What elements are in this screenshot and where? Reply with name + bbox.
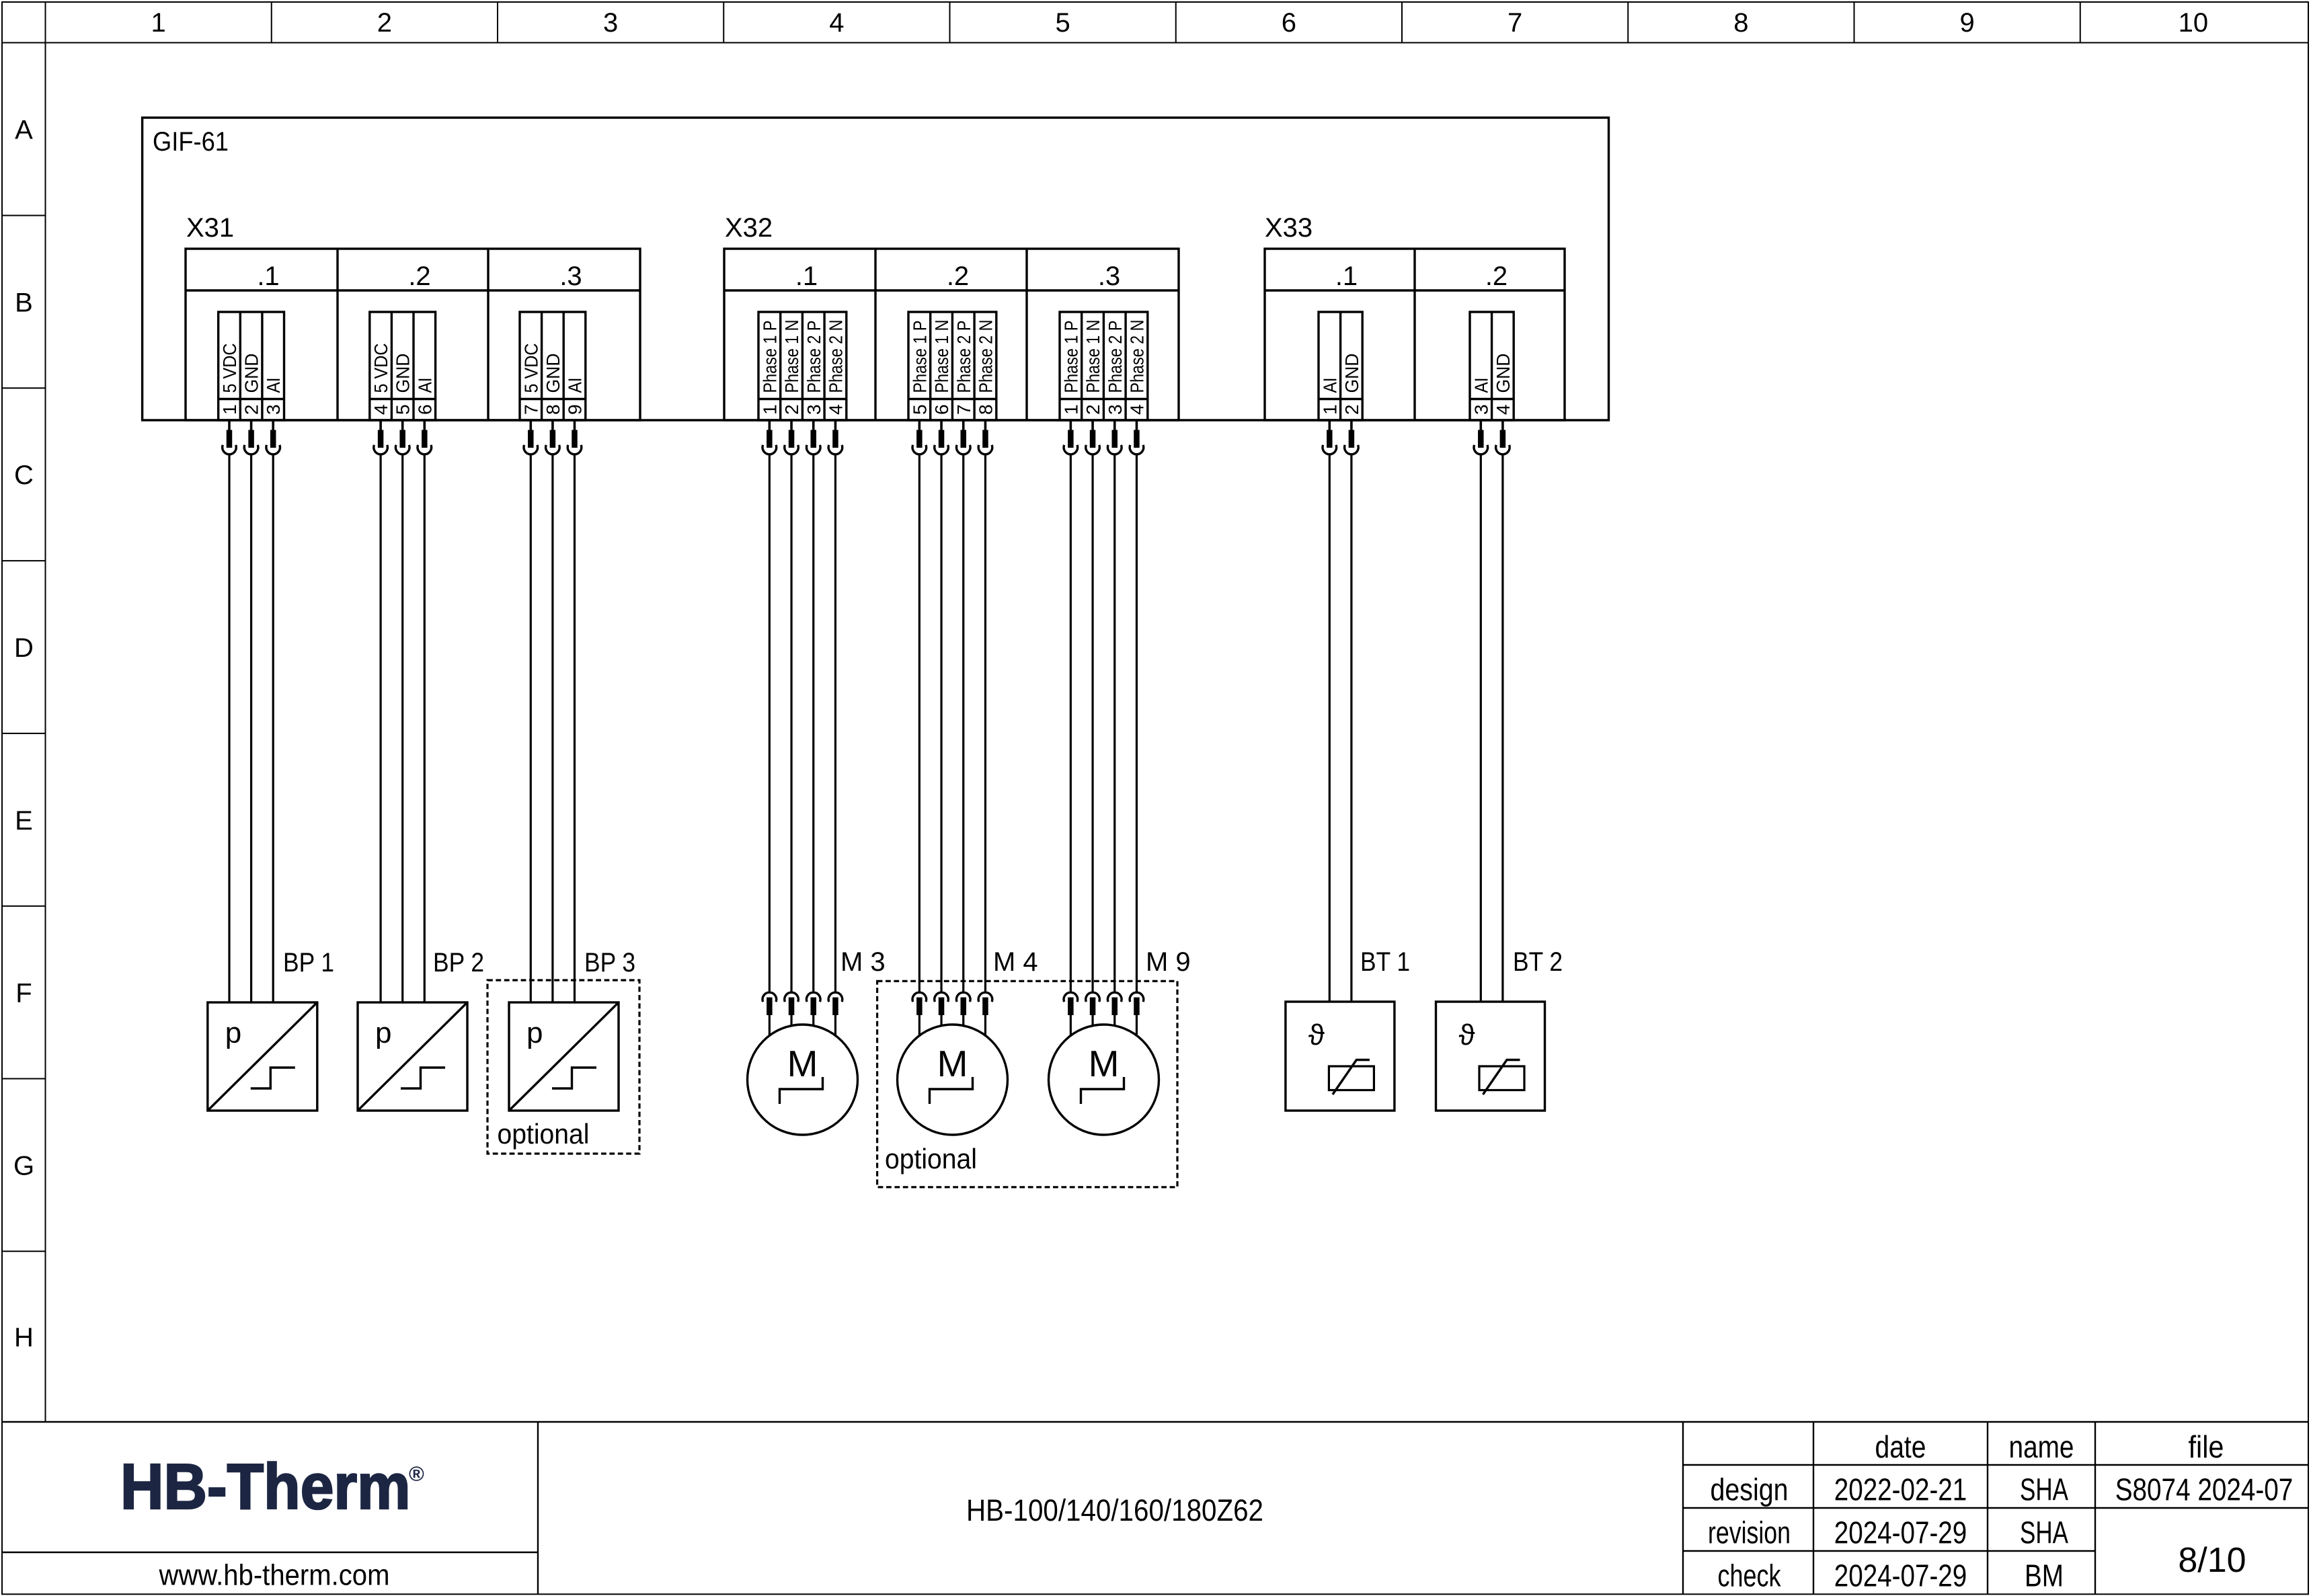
- svg-text:F: F: [15, 979, 32, 1008]
- svg-text:7: 7: [953, 404, 974, 415]
- svg-text:BP 1: BP 1: [283, 948, 334, 977]
- svg-text:2024-07-29: 2024-07-29: [1834, 1558, 1967, 1593]
- svg-text:1: 1: [759, 404, 780, 415]
- svg-text:1: 1: [219, 404, 240, 415]
- svg-text:optional: optional: [498, 1118, 590, 1150]
- svg-text:4: 4: [370, 404, 391, 415]
- svg-text:10: 10: [2179, 8, 2209, 38]
- svg-text:6: 6: [1282, 8, 1296, 38]
- svg-text:5: 5: [1055, 8, 1070, 38]
- svg-text:.2: .2: [947, 262, 969, 291]
- svg-text:SHA: SHA: [2020, 1515, 2068, 1550]
- svg-text:name: name: [2009, 1429, 2074, 1464]
- svg-text:5 VDC: 5 VDC: [520, 344, 541, 393]
- svg-text:1: 1: [1319, 404, 1340, 415]
- svg-text:Phase 2 P: Phase 2 P: [804, 321, 824, 393]
- svg-text:1: 1: [1060, 404, 1081, 415]
- svg-text:GIF-61: GIF-61: [153, 127, 229, 157]
- svg-text:M 9: M 9: [1146, 947, 1191, 977]
- svg-text:B: B: [15, 288, 33, 317]
- svg-text:X33: X33: [1265, 213, 1313, 243]
- svg-text:2024-07-29: 2024-07-29: [1834, 1515, 1967, 1550]
- svg-text:.1: .1: [795, 262, 818, 291]
- svg-text:BP 3: BP 3: [584, 948, 635, 977]
- svg-text:G: G: [13, 1151, 34, 1181]
- svg-text:3: 3: [263, 404, 284, 415]
- svg-text:2: 2: [1083, 404, 1103, 415]
- svg-text:Phase 2 N: Phase 2 N: [975, 320, 996, 393]
- svg-text:BT 1: BT 1: [1360, 947, 1410, 977]
- svg-text:M: M: [937, 1043, 968, 1084]
- svg-text:design: design: [1711, 1472, 1789, 1507]
- svg-text:BT 2: BT 2: [1513, 947, 1563, 977]
- svg-text:Phase 1 N: Phase 1 N: [781, 320, 802, 393]
- svg-text:p: p: [526, 1016, 543, 1049]
- svg-text:6: 6: [414, 404, 435, 415]
- svg-text:8: 8: [975, 404, 996, 415]
- svg-text:GND: GND: [241, 354, 262, 393]
- svg-text:4: 4: [1493, 404, 1514, 415]
- svg-text:www.hb-therm.com: www.hb-therm.com: [159, 1559, 390, 1592]
- svg-text:2: 2: [1341, 404, 1362, 415]
- svg-text:GND: GND: [543, 354, 563, 393]
- svg-text:AI: AI: [1319, 378, 1340, 393]
- svg-text:2: 2: [781, 404, 802, 415]
- svg-text:8: 8: [543, 404, 563, 415]
- svg-text:HB-100/140/160/180Z62: HB-100/140/160/180Z62: [966, 1493, 1263, 1527]
- svg-text:2: 2: [241, 404, 262, 415]
- svg-text:BP 2: BP 2: [433, 948, 484, 977]
- svg-text:5 VDC: 5 VDC: [370, 344, 391, 393]
- svg-text:X31: X31: [186, 213, 234, 243]
- svg-text:file: file: [2189, 1429, 2224, 1464]
- svg-text:AI: AI: [263, 378, 284, 393]
- svg-text:.2: .2: [408, 262, 430, 291]
- svg-text:Phase 2 P: Phase 2 P: [1105, 321, 1126, 393]
- svg-text:check: check: [1718, 1558, 1782, 1593]
- svg-text:D: D: [14, 633, 34, 663]
- svg-text:9: 9: [565, 404, 586, 415]
- svg-text:Phase 1 P: Phase 1 P: [909, 321, 930, 393]
- svg-text:6: 6: [931, 404, 952, 415]
- svg-text:H: H: [14, 1323, 34, 1353]
- svg-text:2: 2: [377, 8, 392, 38]
- svg-text:E: E: [15, 806, 33, 836]
- svg-text:3: 3: [603, 8, 618, 38]
- svg-text:GND: GND: [1493, 354, 1514, 393]
- svg-text:.3: .3: [559, 262, 582, 291]
- svg-text:optional: optional: [885, 1143, 977, 1174]
- svg-text:AI: AI: [414, 378, 435, 393]
- svg-text:Phase 1 N: Phase 1 N: [1083, 320, 1103, 393]
- svg-text:p: p: [375, 1016, 391, 1049]
- svg-text:GND: GND: [1341, 354, 1362, 393]
- svg-text:8: 8: [1733, 8, 1748, 38]
- svg-text:7: 7: [520, 404, 541, 415]
- svg-text:8/10: 8/10: [2178, 1541, 2246, 1580]
- svg-text:1: 1: [151, 8, 166, 38]
- svg-text:A: A: [15, 116, 33, 145]
- svg-text:M: M: [787, 1043, 818, 1084]
- svg-text:4: 4: [825, 404, 846, 415]
- svg-text:C: C: [14, 461, 34, 490]
- svg-text:ϑ: ϑ: [1308, 1019, 1325, 1051]
- svg-text:3: 3: [804, 404, 824, 415]
- svg-text:M 3: M 3: [840, 947, 886, 977]
- svg-text:.1: .1: [1335, 262, 1358, 291]
- svg-text:3: 3: [1105, 404, 1126, 415]
- svg-text:4: 4: [1126, 404, 1147, 415]
- svg-text:9: 9: [1959, 8, 1974, 38]
- svg-text:X32: X32: [725, 213, 773, 243]
- svg-text:.1: .1: [257, 262, 279, 291]
- svg-text:BM: BM: [2025, 1558, 2064, 1593]
- svg-text:S8074 2024-07: S8074 2024-07: [2115, 1472, 2294, 1507]
- svg-text:Phase 2 P: Phase 2 P: [953, 321, 974, 393]
- svg-text:7: 7: [1507, 8, 1522, 38]
- svg-text:M: M: [1089, 1043, 1120, 1084]
- svg-text:5 VDC: 5 VDC: [219, 344, 240, 393]
- svg-text:revision: revision: [1708, 1515, 1791, 1550]
- svg-text:SHA: SHA: [2020, 1472, 2068, 1507]
- svg-text:®: ®: [409, 1462, 424, 1486]
- svg-text:5: 5: [393, 404, 414, 415]
- svg-text:GND: GND: [393, 354, 414, 393]
- svg-text:Phase 1 P: Phase 1 P: [759, 321, 780, 393]
- svg-text:AI: AI: [565, 378, 586, 393]
- svg-text:AI: AI: [1471, 378, 1491, 393]
- svg-text:2022-02-21: 2022-02-21: [1834, 1472, 1967, 1507]
- svg-text:Phase 1 N: Phase 1 N: [931, 320, 952, 393]
- svg-text:date: date: [1875, 1429, 1926, 1464]
- svg-text:HB-Therm: HB-Therm: [120, 1450, 410, 1523]
- svg-text:4: 4: [829, 8, 844, 38]
- svg-text:3: 3: [1471, 404, 1491, 415]
- svg-text:Phase 1 P: Phase 1 P: [1060, 321, 1081, 393]
- svg-text:ϑ: ϑ: [1459, 1019, 1475, 1051]
- svg-text:Phase 2 N: Phase 2 N: [825, 320, 846, 393]
- svg-text:5: 5: [909, 404, 930, 415]
- svg-text:Phase 2 N: Phase 2 N: [1126, 320, 1147, 393]
- svg-text:p: p: [225, 1016, 241, 1049]
- svg-text:.3: .3: [1098, 262, 1120, 291]
- svg-text:.2: .2: [1485, 262, 1507, 291]
- svg-text:M 4: M 4: [993, 947, 1038, 977]
